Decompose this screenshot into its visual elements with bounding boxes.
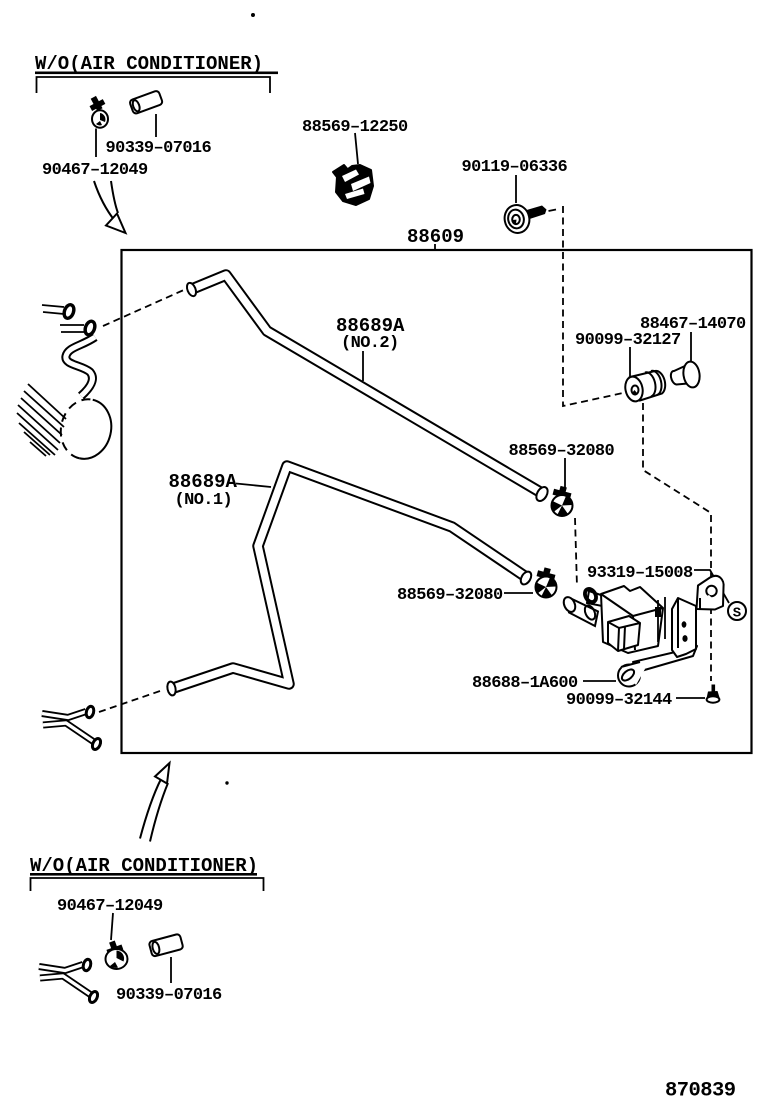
- svg-text:90467–12049: 90467–12049: [42, 161, 148, 180]
- svg-text:90467–12049: 90467–12049: [57, 897, 163, 916]
- svg-text:S: S: [733, 606, 741, 622]
- svg-text:90119–06336: 90119–06336: [462, 158, 568, 177]
- svg-text:(NO.2): (NO.2): [341, 334, 399, 353]
- svg-text:88569–32080: 88569–32080: [509, 442, 615, 461]
- svg-text:90099–32144: 90099–32144: [566, 691, 672, 710]
- svg-text:90339–07016: 90339–07016: [116, 986, 222, 1005]
- svg-text:(NO.1): (NO.1): [175, 491, 233, 510]
- svg-text:870839: 870839: [665, 1080, 736, 1103]
- svg-text:88467–14070: 88467–14070: [640, 315, 746, 334]
- svg-text:88689A: 88689A: [169, 471, 238, 493]
- svg-text:88569–32080: 88569–32080: [397, 586, 503, 605]
- svg-text:88688–1A600: 88688–1A600: [472, 674, 578, 693]
- svg-text:93319–15008: 93319–15008: [587, 564, 693, 583]
- svg-text:90339–07016: 90339–07016: [106, 139, 212, 158]
